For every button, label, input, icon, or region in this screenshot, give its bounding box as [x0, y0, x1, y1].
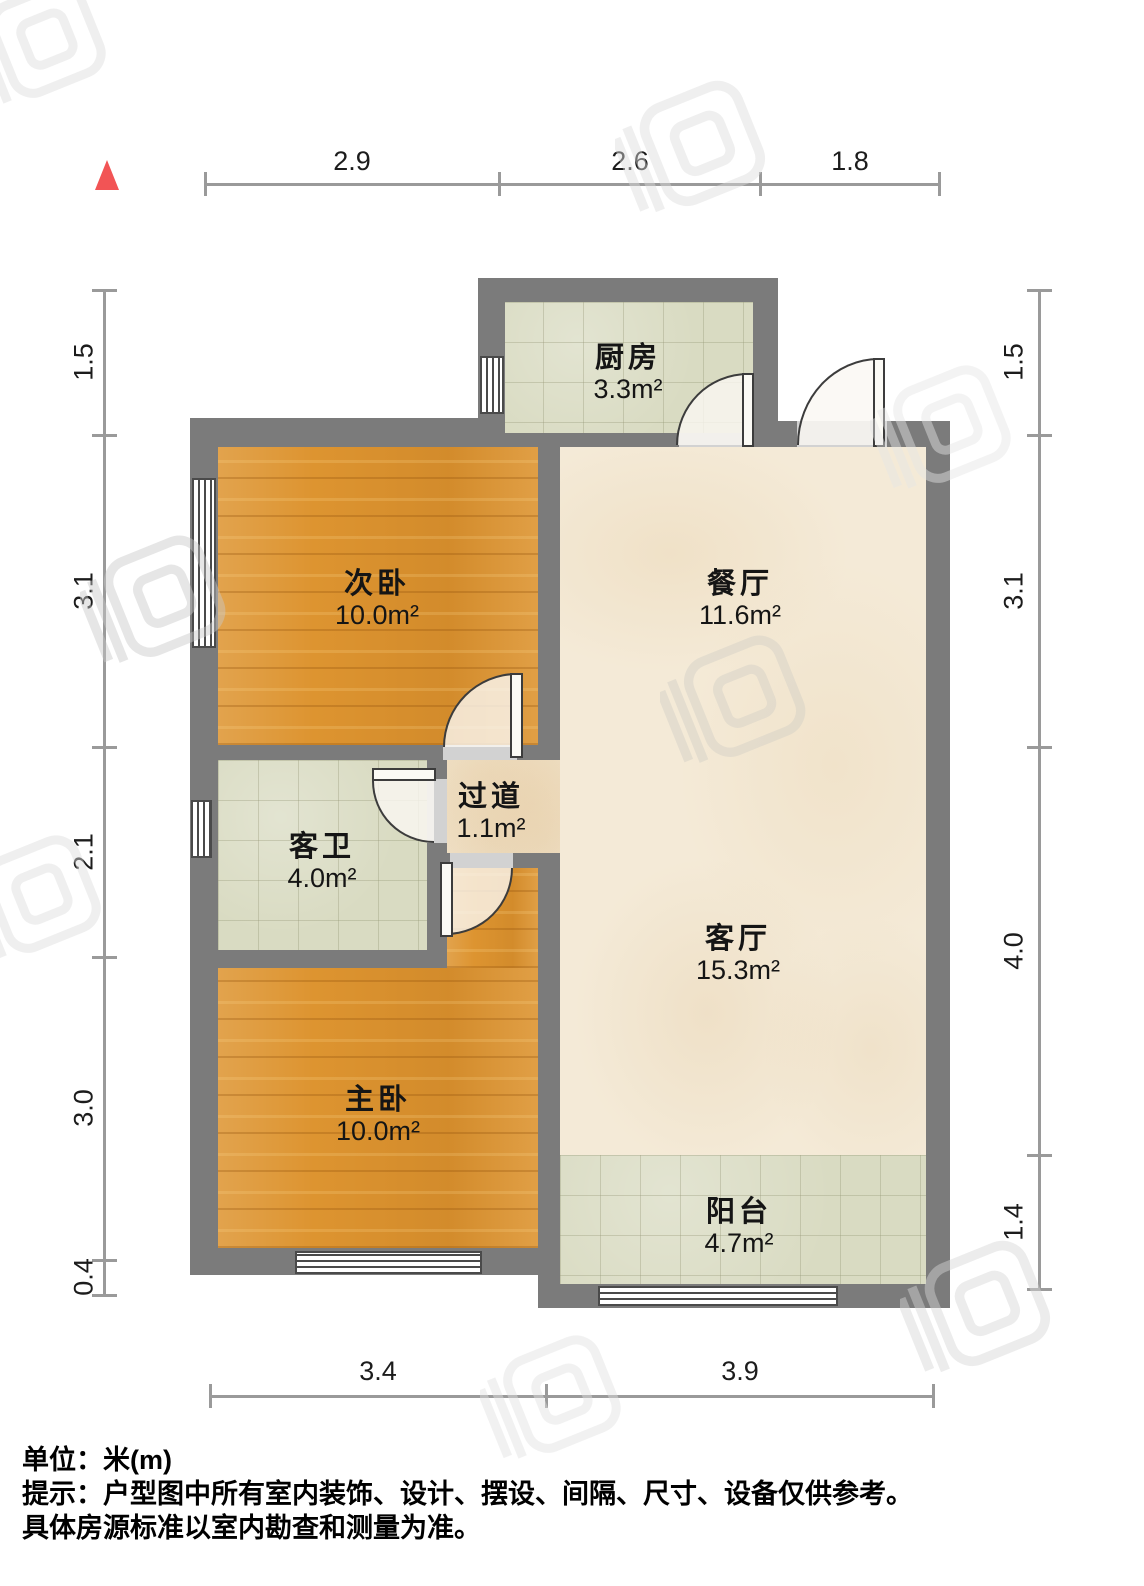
- living-name: 客厅: [696, 923, 780, 955]
- second-bedroom-name: 次卧: [335, 568, 419, 600]
- dim-left-1: 1.5: [69, 343, 100, 381]
- kitchen-label: 厨房 3.3m²: [593, 342, 662, 404]
- wall-right-outer: [926, 421, 950, 1308]
- kitchen-name: 厨房: [593, 342, 662, 374]
- bathroom-label: 客卫 4.0m²: [287, 831, 356, 893]
- second-bedroom-label: 次卧 10.0m²: [335, 568, 419, 630]
- watermark-icon: [480, 1330, 630, 1480]
- dim-left-2: 3.1: [69, 572, 100, 610]
- dim-bottom-2: 3.9: [721, 1356, 759, 1387]
- dim-right-4: 1.4: [999, 1203, 1030, 1241]
- disclaimer-line2: 具体房源标准以室内勘查和测量为准。: [22, 1506, 481, 1545]
- dim-tick: [932, 1384, 935, 1408]
- dim-top-2: 2.6: [611, 146, 649, 177]
- watermark-icon: [0, 0, 115, 125]
- dim-tick: [1027, 1154, 1052, 1157]
- second-bedroom-door-leaf: [510, 673, 523, 758]
- dining-label: 餐厅 11.6m²: [699, 568, 781, 630]
- hallway-label: 过道 1.1m²: [456, 781, 525, 843]
- dim-top-1: 2.9: [333, 146, 371, 177]
- dim-right-1: 1.5: [999, 343, 1030, 381]
- dim-tick: [92, 956, 117, 959]
- dim-tick: [209, 1384, 212, 1408]
- master-bedroom-area: 10.0m²: [336, 1116, 420, 1146]
- second-bedroom-area: 10.0m²: [335, 600, 419, 630]
- master-bedroom-name: 主卧: [336, 1084, 420, 1116]
- master-bedroom-door-leaf: [440, 862, 453, 937]
- dim-tick: [1027, 434, 1052, 437]
- entry-door-leaf: [873, 358, 885, 447]
- second-bedroom-door-opening: [443, 745, 517, 760]
- dim-line-left: [103, 290, 106, 1296]
- living-area: 15.3m²: [696, 955, 780, 985]
- dim-top-3: 1.8: [831, 146, 869, 177]
- bathroom-name: 客卫: [287, 831, 356, 863]
- dining-living-floor: [560, 447, 926, 1155]
- dim-tick: [545, 1384, 548, 1408]
- master-bedroom-window: [295, 1251, 482, 1274]
- wall-divider-lower: [538, 853, 560, 1308]
- floorplan-canvas: 厨房 3.3m² 次卧 10.0m² 餐厅 11.6m² 客卫 4.0m² 过道…: [0, 0, 1144, 1586]
- dining-area: 11.6m²: [699, 600, 781, 630]
- dim-tick: [92, 289, 117, 292]
- wall-kitchen-top: [478, 278, 778, 302]
- dim-tick: [759, 172, 762, 196]
- dim-tick: [1027, 289, 1052, 292]
- master-bedroom-door-opening: [450, 853, 513, 868]
- north-arrow-icon: [95, 160, 119, 190]
- balcony-window: [598, 1286, 838, 1306]
- bathroom-window: [191, 800, 212, 858]
- dim-tick: [1027, 1288, 1052, 1291]
- dining-name: 餐厅: [699, 568, 781, 600]
- kitchen-door-leaf: [742, 373, 754, 447]
- kitchen-area: 3.3m²: [593, 374, 662, 404]
- wall-bathroom-bottom: [190, 950, 447, 968]
- balcony-area: 4.7m²: [704, 1228, 773, 1258]
- dim-line-bottom: [210, 1395, 934, 1398]
- dim-left-5: 0.4: [69, 1258, 100, 1296]
- dim-tick: [498, 172, 501, 196]
- balcony-label: 阳台 4.7m²: [704, 1196, 773, 1258]
- dim-tick: [1027, 746, 1052, 749]
- wall-top-left: [190, 418, 505, 447]
- dim-tick: [92, 434, 117, 437]
- second-bedroom-window: [192, 478, 216, 648]
- dim-bottom-1: 3.4: [359, 1356, 397, 1387]
- dim-tick: [92, 746, 117, 749]
- wall-divider-upper: [538, 433, 560, 760]
- kitchen-window: [480, 356, 504, 414]
- living-label: 客厅 15.3m²: [696, 923, 780, 985]
- master-bedroom-label: 主卧 10.0m²: [336, 1084, 420, 1146]
- dim-tick: [204, 172, 207, 196]
- dim-left-4: 3.0: [69, 1089, 100, 1127]
- bathroom-door-leaf: [372, 768, 436, 781]
- entry-door-arc: [797, 358, 879, 445]
- dim-tick: [938, 172, 941, 196]
- dim-left-3: 2.1: [69, 833, 100, 871]
- hallway-area: 1.1m²: [456, 813, 525, 843]
- bathroom-area: 4.0m²: [287, 863, 356, 893]
- dim-line-right: [1038, 290, 1041, 1290]
- dim-right-3: 4.0: [999, 932, 1030, 970]
- dim-line-top: [205, 183, 940, 186]
- balcony-name: 阳台: [704, 1196, 773, 1228]
- dim-right-2: 3.1: [999, 572, 1030, 610]
- hallway-name: 过道: [456, 781, 525, 813]
